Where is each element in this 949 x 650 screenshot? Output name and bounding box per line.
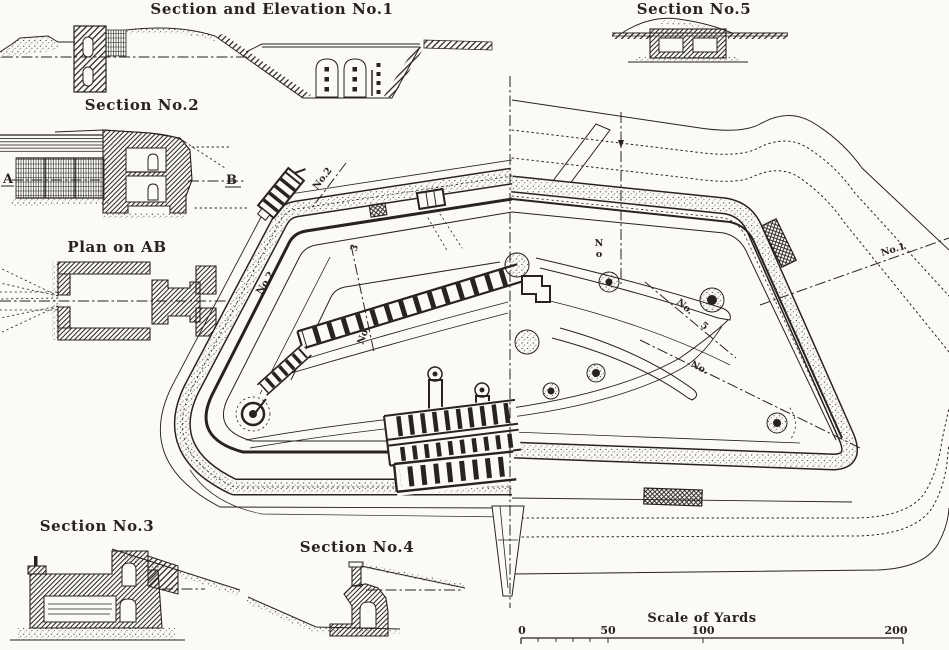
caponier-head bbox=[522, 276, 550, 302]
plan-label: 5 bbox=[698, 320, 710, 333]
scale-tick-50: 50 bbox=[600, 624, 616, 637]
marker-b: B bbox=[226, 173, 237, 188]
section-no2-drawing: A B bbox=[0, 130, 250, 219]
gorge-spur bbox=[492, 506, 524, 596]
plate-svg: A B bbox=[0, 0, 949, 650]
section-no4-drawing bbox=[246, 562, 465, 636]
gallery-outline-right bbox=[536, 258, 730, 320]
scale-tick-100: 100 bbox=[692, 624, 715, 637]
gorge-caponier-complex bbox=[384, 367, 524, 596]
scale-bar: Scale of Yards 0 50 100 200 bbox=[518, 611, 908, 644]
fort-plan: No.2 No.2 3 No. No No. 5 No. No.1 bbox=[160, 76, 949, 608]
section4-title: Section No.4 bbox=[300, 538, 415, 556]
section5-title: Section No.5 bbox=[637, 0, 752, 18]
caponier-pier-plan bbox=[152, 280, 200, 324]
emplacement bbox=[515, 330, 539, 354]
marker-a: A bbox=[2, 172, 14, 187]
section2-title: Section No.2 bbox=[85, 96, 200, 114]
section-no3-drawing bbox=[10, 549, 240, 640]
traverse-crosshatch bbox=[369, 203, 387, 217]
parapet-structure bbox=[417, 189, 445, 209]
gun-emplacement bbox=[236, 397, 270, 431]
caponier-wall-plan bbox=[58, 262, 150, 274]
section3-title: Section No.3 bbox=[40, 517, 155, 535]
scale-tick-0: 0 bbox=[518, 624, 526, 637]
gun-emplacement bbox=[543, 272, 796, 440]
gallery-masonry-section bbox=[330, 584, 388, 636]
section-no5-drawing bbox=[612, 18, 788, 62]
plan-on-ab-drawing bbox=[0, 262, 248, 340]
counterscarp-grating bbox=[16, 158, 104, 198]
section-elevation-no1-drawing bbox=[0, 26, 492, 99]
plan-label: 3 bbox=[348, 243, 361, 253]
plan-ab-title: Plan on AB bbox=[67, 238, 166, 256]
fortification-plate: A B bbox=[0, 0, 949, 650]
section1-title: Section and Elevation No.1 bbox=[150, 0, 393, 18]
scale-tick-200: 200 bbox=[885, 624, 908, 637]
salient-emplacement bbox=[505, 253, 529, 277]
covered-way-band-right bbox=[512, 184, 850, 462]
plan-label: No. bbox=[674, 297, 695, 317]
parapet-wall-section bbox=[352, 566, 361, 586]
plan-label: No.1 bbox=[880, 241, 907, 259]
plan-label: No. bbox=[689, 359, 710, 377]
glacis-crest-line bbox=[512, 100, 949, 250]
plan-label: No bbox=[594, 238, 605, 260]
traverse-crosshatch bbox=[644, 488, 703, 506]
